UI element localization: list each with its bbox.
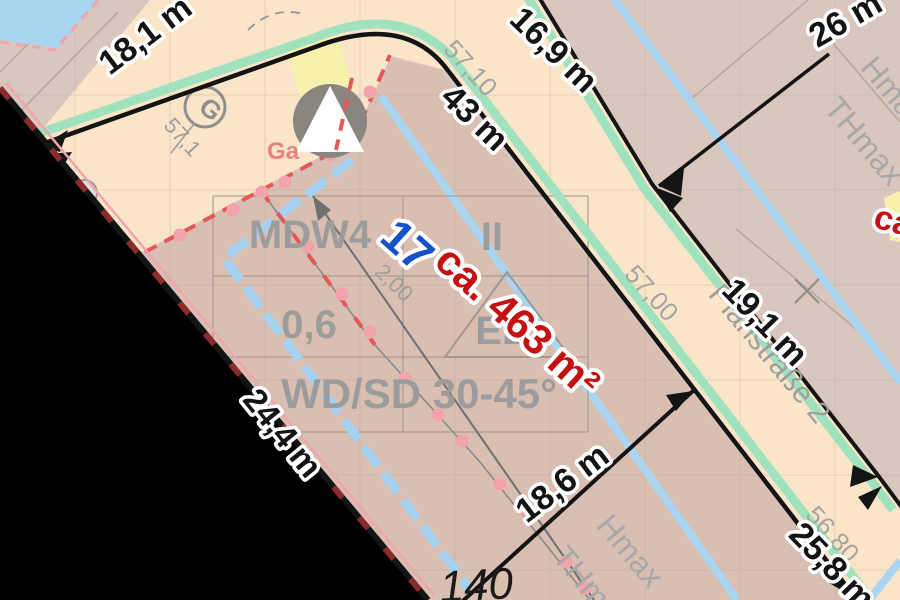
ga-label: Ga bbox=[267, 138, 300, 165]
zoning-use-label: MDW4 bbox=[249, 213, 372, 257]
cadastral-parcel-number: 140 bbox=[438, 559, 514, 600]
development-plan-map-canvas[interactable]: G 57,1 57,10 57,00 56,80 Planstraße 2 2,… bbox=[0, 0, 900, 600]
zoning-roof-label: WD/SD 30-45° bbox=[281, 370, 557, 417]
plan-drawing: G 57,1 57,10 57,00 56,80 Planstraße 2 2,… bbox=[0, 0, 900, 600]
zoning-storeys-label: II bbox=[481, 215, 503, 259]
zoning-grz-label: 0,6 bbox=[281, 303, 337, 347]
